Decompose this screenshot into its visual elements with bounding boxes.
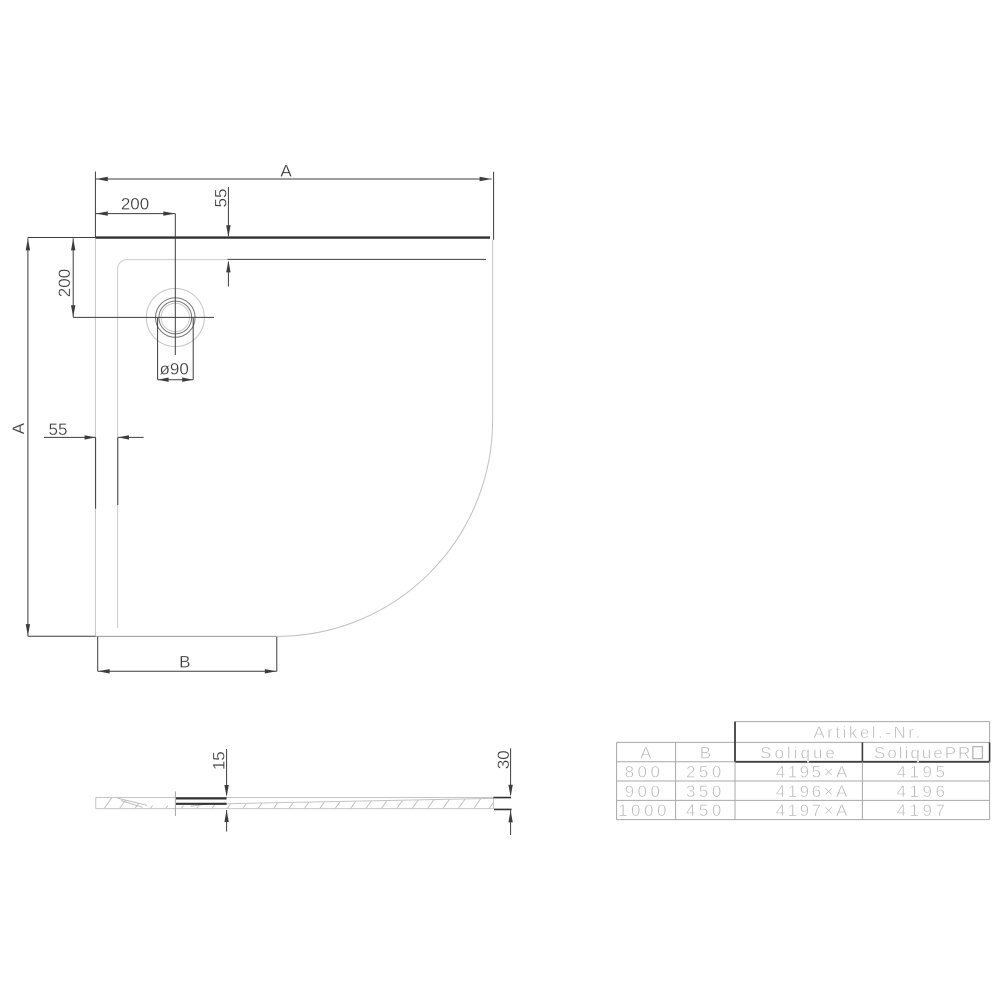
svg-text:Solique: Solique — [760, 743, 838, 762]
svg-text:30: 30 — [494, 750, 513, 769]
svg-text:350: 350 — [686, 782, 725, 801]
svg-text:55: 55 — [212, 189, 231, 208]
svg-text:450: 450 — [686, 801, 725, 820]
svg-text:B: B — [700, 743, 711, 762]
svg-text:A: A — [640, 743, 652, 762]
svg-text:900: 900 — [625, 782, 664, 801]
svg-text:4196: 4196 — [897, 782, 949, 801]
svg-text:15: 15 — [210, 751, 229, 770]
svg-text:1000: 1000 — [618, 801, 670, 820]
svg-text:250: 250 — [686, 763, 725, 782]
svg-text:4197: 4197 — [897, 801, 949, 820]
svg-text:4195×A: 4195×A — [776, 763, 850, 782]
svg-text:200: 200 — [121, 195, 149, 214]
svg-text:4195: 4195 — [897, 763, 949, 782]
svg-text:Artikel.-Nr.: Artikel.-Nr. — [813, 723, 922, 742]
svg-text:A: A — [9, 422, 28, 434]
svg-text:A: A — [280, 162, 292, 181]
svg-text:800: 800 — [625, 763, 664, 782]
svg-text:4197×A: 4197×A — [776, 801, 850, 820]
svg-text:55: 55 — [49, 420, 68, 439]
svg-text:4196×A: 4196×A — [776, 782, 850, 801]
svg-text:B: B — [179, 653, 190, 672]
svg-text:200: 200 — [55, 269, 74, 297]
svg-text:SoliquePR: SoliquePR — [874, 743, 972, 762]
svg-text:ø90: ø90 — [160, 360, 189, 379]
